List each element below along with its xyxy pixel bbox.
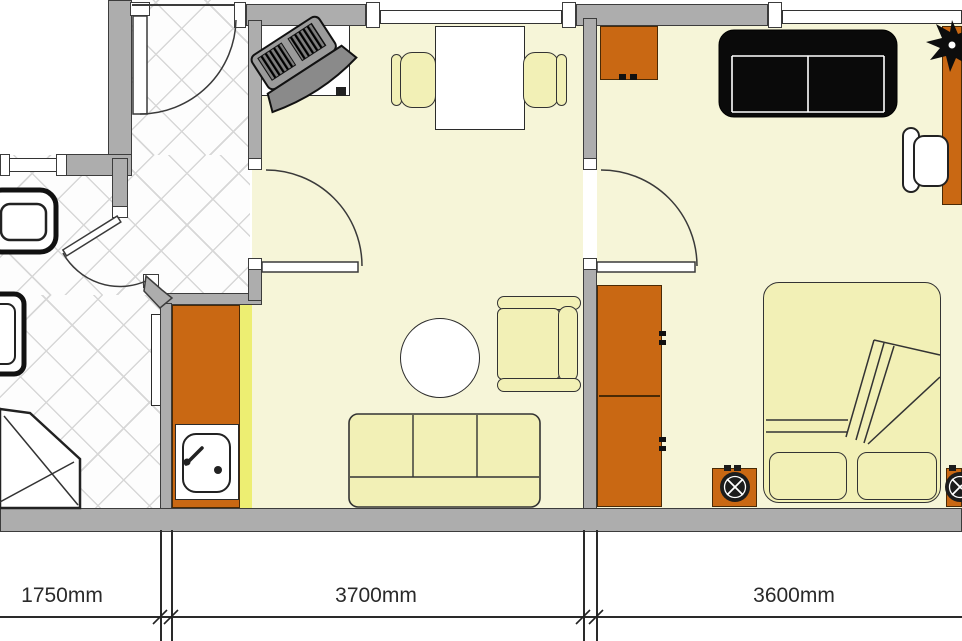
round-table [400, 318, 480, 398]
extension-line-2 [171, 530, 173, 641]
window2-jamb-left [768, 2, 782, 28]
dimension-line [0, 616, 962, 618]
entrance-threshold-line [132, 4, 236, 6]
diag-door-jamb-bottom [143, 274, 159, 288]
wall-left-vertical [108, 0, 132, 158]
desk [942, 26, 962, 205]
bathroom-window [9, 158, 58, 172]
dimension-label-left: 1750mm [21, 584, 103, 608]
top-wall-b [576, 4, 768, 26]
extension-line-3 [583, 530, 585, 641]
wardrobe-divider [599, 395, 660, 397]
dining-table [435, 26, 525, 130]
dining-chair-right-seat [523, 52, 559, 108]
dimension-label-middle: 3700mm [335, 584, 417, 608]
dimension-label-right: 3600mm [753, 584, 835, 608]
top-wall-a [246, 4, 366, 26]
nightstand-left [712, 468, 757, 507]
diag-door-jamb-top [112, 206, 128, 218]
partition-bedroom-upper [583, 18, 597, 160]
partition-living-lower [248, 269, 262, 301]
entrance-jamb-right [234, 2, 246, 28]
window1-jamb-left [366, 2, 380, 28]
kitchen-sink-unit [175, 424, 239, 500]
pillow-right [857, 452, 937, 500]
armchair-arm-bottom [497, 378, 581, 392]
extension-line-4 [596, 530, 598, 641]
dining-chair-right-back [556, 54, 567, 106]
kitchen-jog-wall [160, 293, 262, 305]
tv-stand [255, 24, 350, 96]
partition-bedroom-lower [583, 269, 597, 510]
partition-living-upper [248, 20, 262, 160]
dining-chair-left-seat [400, 52, 436, 108]
bedroom-door-jamb-top [583, 158, 597, 170]
extension-line-1 [160, 530, 162, 641]
bottom-wall [0, 508, 962, 532]
living-room-window [380, 10, 562, 24]
window1-jamb-right [562, 2, 576, 28]
floor-plan: 1750mm 3700mm 3600mm [0, 0, 962, 641]
kitchen-left-wall [160, 303, 172, 510]
hallway-wall-stub [112, 158, 128, 208]
living-door-jamb-top [248, 158, 262, 170]
armchair-seat [497, 308, 560, 380]
bathroom-tile-floor [0, 295, 160, 510]
pillow-left [769, 452, 847, 500]
armchair-back [558, 306, 578, 382]
kitchen-counter-highlight [240, 305, 252, 508]
bedroom-window [782, 10, 962, 24]
nightstand-right [946, 468, 962, 507]
bedroom-cabinet [600, 26, 658, 80]
